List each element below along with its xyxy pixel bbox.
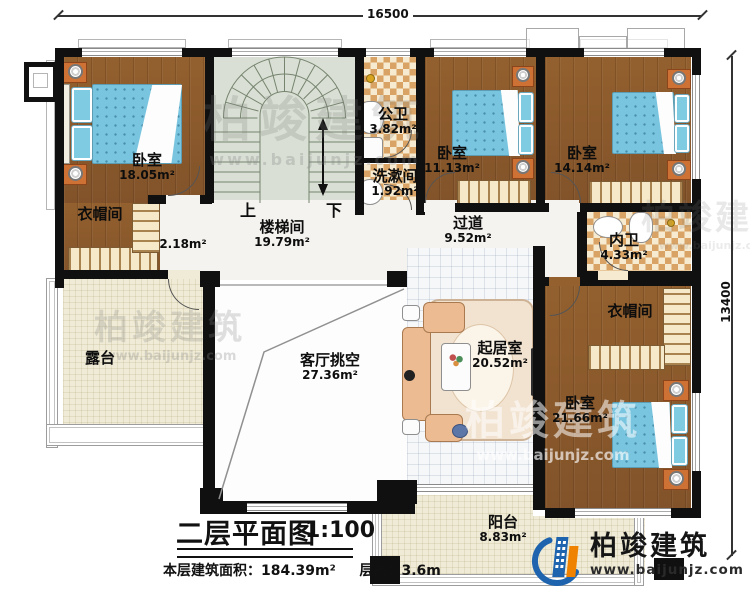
- brand-logo: 柏竣建筑 www.baijunjz.com: [528, 532, 744, 588]
- closet: [588, 345, 665, 370]
- bed-pillow: [72, 126, 92, 160]
- closet: [457, 180, 531, 204]
- plan-subtitle: 本层建筑面积：184.39m² 层高：3.6m: [163, 560, 441, 580]
- stairs-drawing: [214, 56, 355, 203]
- brand-url: www.baijunjz.com: [590, 562, 744, 578]
- closet: [663, 288, 691, 366]
- bed-pillow: [672, 437, 687, 465]
- window: [575, 508, 671, 518]
- lamp: [68, 166, 83, 181]
- window: [247, 503, 347, 512]
- niche-inner: [33, 73, 48, 88]
- door-gap: [598, 271, 628, 280]
- door-gap: [549, 277, 580, 286]
- brand-logo-icon: [528, 532, 586, 588]
- dimension-top-value: 16500: [363, 7, 413, 21]
- room-label-balcony: 阳台 8.83m²: [479, 514, 526, 544]
- window: [434, 48, 526, 57]
- plan-scale: 1:100: [305, 518, 375, 543]
- roof-outline: [627, 28, 685, 50]
- void-diagonal-lines: [214, 286, 407, 502]
- stairs-up-label: 上: [240, 197, 256, 221]
- window: [692, 75, 701, 179]
- floor-drain: [667, 219, 675, 227]
- wall-bedroom23: [536, 48, 545, 212]
- wall-bath-divider: [355, 158, 416, 163]
- window: [692, 393, 701, 471]
- lamp: [669, 471, 684, 486]
- pillar-void-top-right: [387, 271, 407, 287]
- bed-headboard: [63, 84, 70, 164]
- bed-pillow: [519, 93, 533, 122]
- window-balcony-door: [417, 484, 533, 495]
- window-sill: [78, 39, 186, 48]
- wall-cloak1-bottom: [55, 270, 169, 279]
- door-gap: [549, 203, 580, 212]
- roof-outline: [526, 28, 579, 50]
- lamp: [516, 68, 530, 82]
- closet: [589, 181, 683, 205]
- room-label-public-bath: 公卫 3.82m²: [369, 106, 416, 136]
- window: [82, 48, 182, 57]
- decor-item: [452, 424, 468, 438]
- window: [366, 48, 410, 57]
- room-label-terrace: 露台: [85, 350, 115, 367]
- room-label-corridor: 过道 9.52m²: [444, 215, 491, 245]
- bed-pillow: [672, 405, 687, 433]
- plan-title: 二层平面图: [176, 512, 316, 551]
- pillar-void-top-left: [200, 271, 220, 287]
- lamp: [516, 160, 530, 174]
- door-gap: [424, 203, 455, 212]
- terrace-railing: [46, 278, 58, 448]
- bed-pillow: [519, 125, 533, 154]
- lamp: [68, 64, 83, 79]
- terrace-railing: [46, 424, 208, 446]
- wall-stair-left: [205, 48, 214, 203]
- room-label-bedroom3: 卧室 14.14m²: [554, 145, 610, 175]
- room-label-cloak1: 衣帽间: [77, 206, 122, 223]
- room-label-inner-bath: 内卫 4.33m²: [600, 232, 647, 262]
- door-gap: [168, 270, 200, 279]
- bed-pillow: [72, 88, 92, 122]
- room-label-washroom: 洗漱间 1.92m²: [371, 168, 418, 198]
- floor-area-label: 本层建筑面积：: [163, 563, 261, 579]
- lamp: [672, 71, 686, 85]
- brand-name: 柏竣建筑: [590, 532, 744, 562]
- wall-bath-left: [355, 48, 364, 215]
- title-underline: [177, 548, 353, 558]
- room-label-sitting: 起居室 20.52m²: [472, 340, 528, 370]
- wall-bedroom4-left: [533, 246, 545, 510]
- wall-innerbath-left: [577, 210, 587, 280]
- room-label-bedroom1: 卧室 18.05m²: [119, 152, 175, 182]
- stairs-down-label: 下: [326, 197, 342, 221]
- armchair: [423, 302, 465, 333]
- floor-area-value: 184.39m²: [261, 563, 336, 579]
- floor-height-label: 层高：: [360, 563, 402, 579]
- room-label-cloak2: 衣帽间: [607, 303, 652, 320]
- window: [584, 48, 664, 57]
- bed-pillow: [675, 125, 689, 152]
- floorplan-page: { "dimensions": { "top": "16500", "right…: [0, 0, 750, 602]
- room-label-bedroom4: 卧室 21.66m²: [552, 395, 608, 425]
- dimension-right-value: 13400: [719, 268, 733, 336]
- room-label-bedroom2: 卧室 11.13m²: [424, 145, 480, 175]
- room-area-cloak1: 2.18m²: [159, 238, 206, 251]
- stair-direction-arrow: [318, 118, 328, 196]
- room-label-living-void: 客厅挑空 27.36m²: [300, 352, 360, 382]
- lamp: [672, 162, 686, 176]
- light-fixture: [366, 74, 375, 83]
- window-sill: [228, 39, 342, 48]
- room-label-stairwell: 楼梯间 19.79m²: [254, 219, 310, 249]
- closet: [132, 203, 160, 253]
- bed-pillow: [675, 95, 689, 122]
- floor-height-value: 3.6m: [402, 563, 441, 579]
- flower-decor: [448, 352, 464, 368]
- door-gap: [166, 195, 200, 204]
- lamp: [669, 382, 684, 397]
- window-sill: [430, 39, 530, 48]
